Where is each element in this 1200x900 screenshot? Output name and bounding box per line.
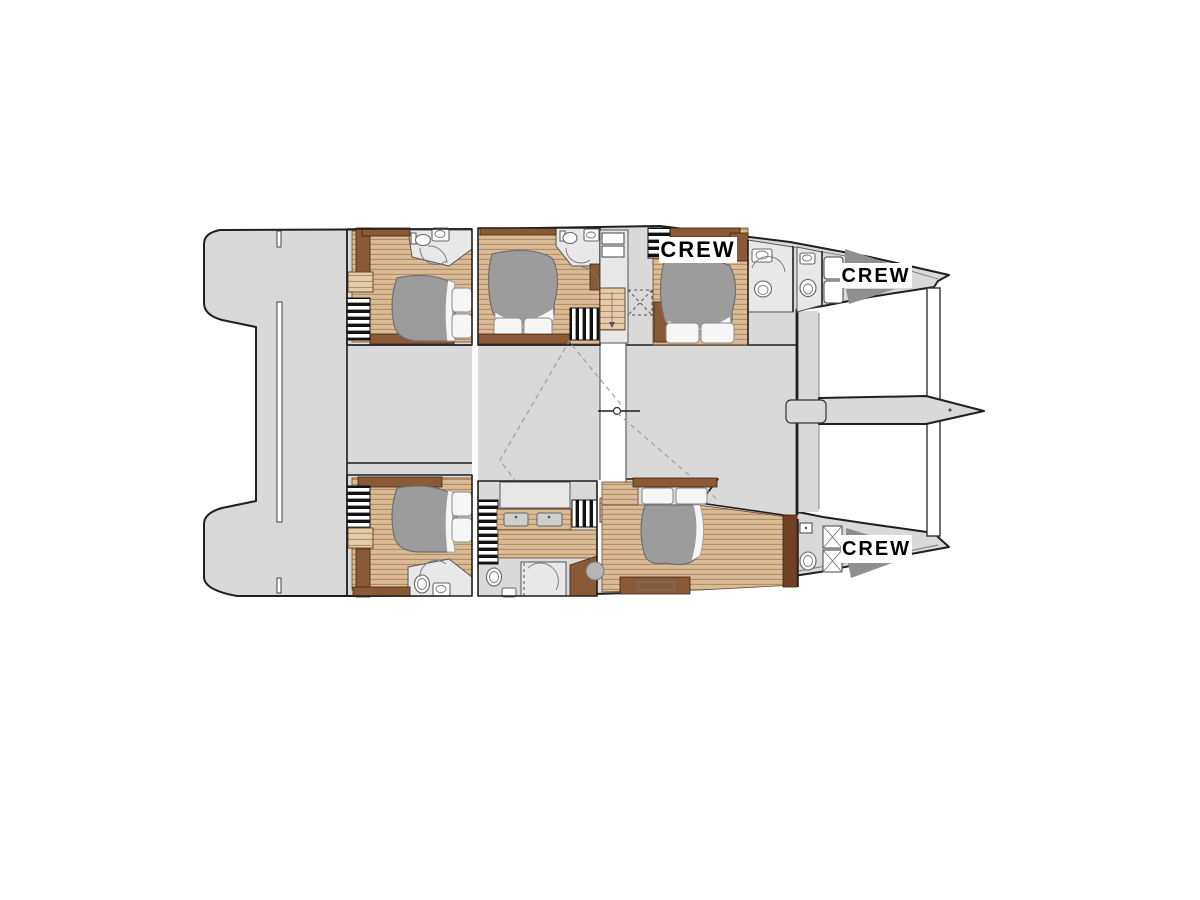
galley-floor [498,530,597,558]
crew-label-bow-starboard: CREW [841,535,912,563]
toilet-icon [800,280,816,297]
companionway-stairs [347,298,370,340]
pillow [676,488,707,504]
headboard-shelf [480,228,556,235]
bowsprit [819,396,984,424]
pillow [666,323,699,343]
crew-berth-cushion [846,289,895,304]
pillow [452,492,472,516]
crew-label-bow-port: CREW [840,263,912,288]
pillow [452,288,472,312]
cabin-steps [348,272,373,292]
headboard-shelf [633,478,717,487]
toilet-icon [415,575,430,593]
crew-door [823,526,842,548]
toilet-icon [487,568,502,586]
companionway-stairs [478,500,498,564]
bedside-floor [602,482,638,505]
sink-icon [584,229,599,241]
sink-icon [432,228,449,241]
bowsprit-fitting [948,408,951,411]
galley-sink [504,513,528,526]
galley-sink [537,513,562,526]
wardrobe-louvre [572,500,597,527]
shower-room [521,562,566,596]
cabin-port-mid [478,228,600,345]
pillow [452,518,472,542]
wardrobe-louvre [570,308,600,340]
crew-door [823,550,842,572]
catamaran-floor-plan [0,0,1200,900]
sink-icon [752,249,772,262]
bed-base [478,334,570,344]
bed-duvet [489,250,558,322]
joint-strip-aft [472,228,478,597]
cabinet-top [500,482,570,508]
cabin-port-aft [347,228,472,345]
cabin-steps [348,528,373,548]
transom-slot-bottom [277,578,281,593]
locker [602,246,624,257]
hull-stairs [600,288,625,330]
wardrobe-fwd [783,515,797,587]
floor-plan-canvas: CREW CREW CREW [0,0,1200,900]
side-cabinet [590,264,600,290]
crew-berth-cushion [848,563,892,578]
companionway-stairs [347,486,370,528]
footer-shelf [353,587,410,596]
dresser [620,577,690,594]
crew-label-fwd-port: CREW [659,237,737,263]
pillow [452,314,472,338]
galley-stbd [478,481,597,597]
pillow [701,323,734,343]
foredeck-hatch [786,400,826,423]
pillow [642,488,673,504]
sink-icon [800,253,815,264]
headboard-shelf [358,477,442,487]
pouf-seat [586,562,604,580]
sink-icon [433,583,450,596]
cabin-stbd-aft [347,475,472,597]
toilet-icon [755,281,772,297]
transom-slot-long [277,302,282,522]
transom-slot-top [277,231,281,247]
locker [602,233,624,244]
companionway-strip-center [600,343,626,503]
